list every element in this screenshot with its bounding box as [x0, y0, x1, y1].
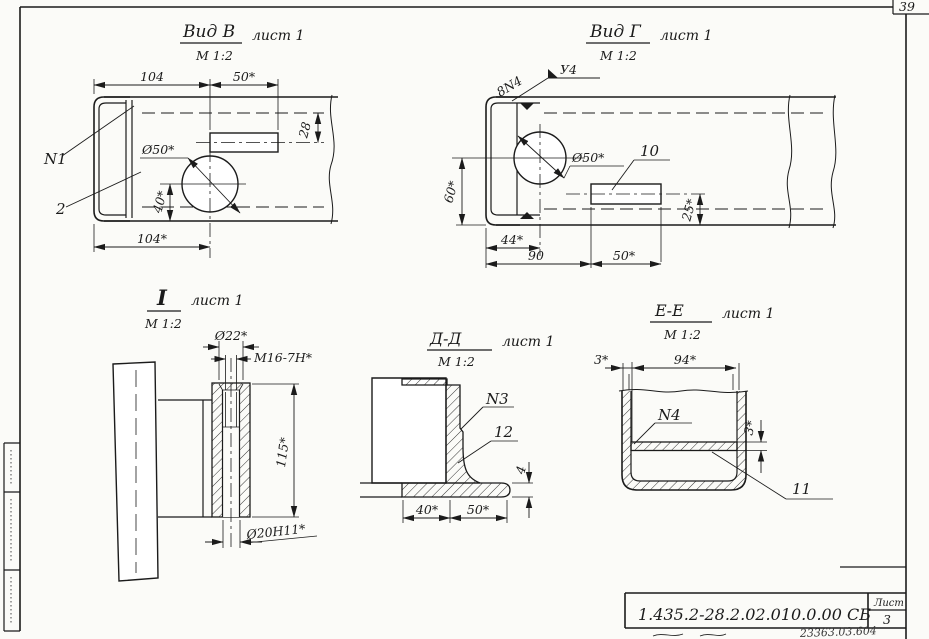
item-label-2: 2 [55, 200, 66, 218]
view-b-sheet-ref: лист 1 [252, 28, 304, 44]
dim-28: 28 [295, 120, 314, 140]
item-label-11: 11 [792, 480, 811, 498]
dim-44: 44* [500, 232, 524, 247]
dim-40: 40* [415, 502, 439, 517]
view-b-title: Вид В [182, 22, 235, 42]
sheet-label: Лист [873, 598, 904, 609]
corner-stamp-number: 39 [899, 0, 915, 14]
channel-section-hatch [622, 391, 746, 490]
handwritten-number: 23363.03.604 [799, 624, 877, 639]
item-label-12: 12 [494, 423, 513, 441]
angle-web [446, 385, 480, 483]
bent-end-inner [99, 103, 126, 215]
detail-i-part [113, 358, 250, 581]
dim-60: 60* [441, 178, 461, 204]
weld-flag-icon [548, 69, 558, 78]
detail-i-header: I лист 1 М 1:2 [144, 285, 243, 331]
weld-seam-top [520, 103, 534, 110]
weld-label-n4: N4 [657, 406, 681, 424]
dim-4: 4 [512, 464, 529, 477]
dim-90: 90 [528, 248, 544, 263]
dim-104b: 104* [137, 231, 168, 246]
frame-stamp-cells [4, 443, 20, 631]
weld-label-n3: N3 [485, 390, 509, 408]
dim-104: 104 [140, 69, 164, 84]
dim-dia50: Ø50* [571, 150, 605, 165]
detail-i-sheet-ref: лист 1 [191, 293, 243, 309]
base-plate [113, 362, 158, 581]
break-line [619, 389, 748, 392]
weld-flag-code: У4 [560, 62, 577, 77]
view-g-header: Вид Г лист 1 М 1:2 [586, 22, 712, 63]
dim-50: 50* [613, 248, 636, 263]
item-label-10: 10 [640, 142, 660, 160]
view-g-title: Вид Г [589, 22, 642, 42]
dim-thread: М16-7Н* [253, 350, 313, 365]
channel-wall [372, 378, 446, 483]
view-b-scale: М 1:2 [195, 48, 233, 63]
section-dd-header: Д-Д лист 1 М 1:2 [427, 329, 554, 369]
break-line [329, 95, 334, 224]
section-dd-item-labels: N3 12 [458, 390, 518, 463]
sheet-number: 3 [883, 612, 891, 627]
drawing-canvas: 39 Вид В лист 1 М 1:2 [0, 0, 929, 639]
section-dd-title: Д-Д [429, 329, 462, 348]
doc-number: 1.435.2-28.2.02.010.0.00 СБ [638, 605, 871, 624]
section-ee-sheet-ref: лист 1 [722, 306, 774, 322]
section-ee-title: Е-Е [654, 301, 684, 320]
view-g-sheet-ref: лист 1 [660, 28, 712, 44]
detail-i-scale: М 1:2 [144, 316, 182, 331]
view-g-scale: М 1:2 [599, 48, 637, 63]
dim-50: 50* [467, 502, 490, 517]
dim-dia50: Ø50* [141, 142, 175, 157]
dim-40: 40* [149, 188, 170, 215]
boss [158, 400, 212, 517]
gusset-plate [210, 133, 278, 152]
angle-bottom-flange [402, 483, 510, 497]
end-plate-edge [126, 100, 132, 218]
section-ee-scale: М 1:2 [663, 327, 701, 342]
view-g: Вид Г лист 1 М 1:2 8N4 У4 [441, 22, 836, 268]
drawing-sheet: 39 Вид В лист 1 М 1:2 [0, 0, 929, 639]
dim-115: 115* [273, 436, 292, 469]
section-dd-scale: М 1:2 [437, 354, 475, 369]
section-dd: Д-Д лист 1 М 1:2 40* 50* 4 N3 [360, 329, 554, 523]
section-ee: Е-Е лист 1 М 1:2 3* 94* 3* N4 [594, 301, 833, 499]
angle-top-flange [402, 379, 447, 385]
handwritten-notes: 23363.03.604 [653, 624, 877, 639]
view-g-weld-callout: 8N4 У4 [494, 62, 600, 101]
detail-i-title: I [156, 285, 168, 310]
view-b-header: Вид В лист 1 М 1:2 [180, 22, 304, 63]
weld-label-n1: N1 [43, 150, 67, 168]
break-line-2 [831, 95, 836, 228]
dim-3-right: 3* [741, 418, 759, 436]
dim-dia20: Ø20Н11* [245, 521, 307, 542]
break-line-1 [787, 95, 791, 228]
detail-i: I лист 1 М 1:2 Ø22* М16-7Н* [113, 285, 317, 581]
view-b: Вид В лист 1 М 1:2 104 50* 28 [43, 22, 338, 258]
section-dd-sheet-ref: лист 1 [502, 334, 554, 350]
dim-94: 94* [674, 352, 697, 367]
dim-dia22: Ø22* [214, 328, 248, 343]
dim-50: 50* [233, 69, 256, 84]
dim-3-left: 3* [594, 352, 609, 367]
plate-item-11 [631, 442, 737, 451]
section-ee-header: Е-Е лист 1 М 1:2 [650, 301, 774, 342]
dim-25: 25* [678, 196, 699, 223]
title-block: 1.435.2-28.2.02.010.0.00 СБ Лист 3 23363… [625, 567, 906, 639]
